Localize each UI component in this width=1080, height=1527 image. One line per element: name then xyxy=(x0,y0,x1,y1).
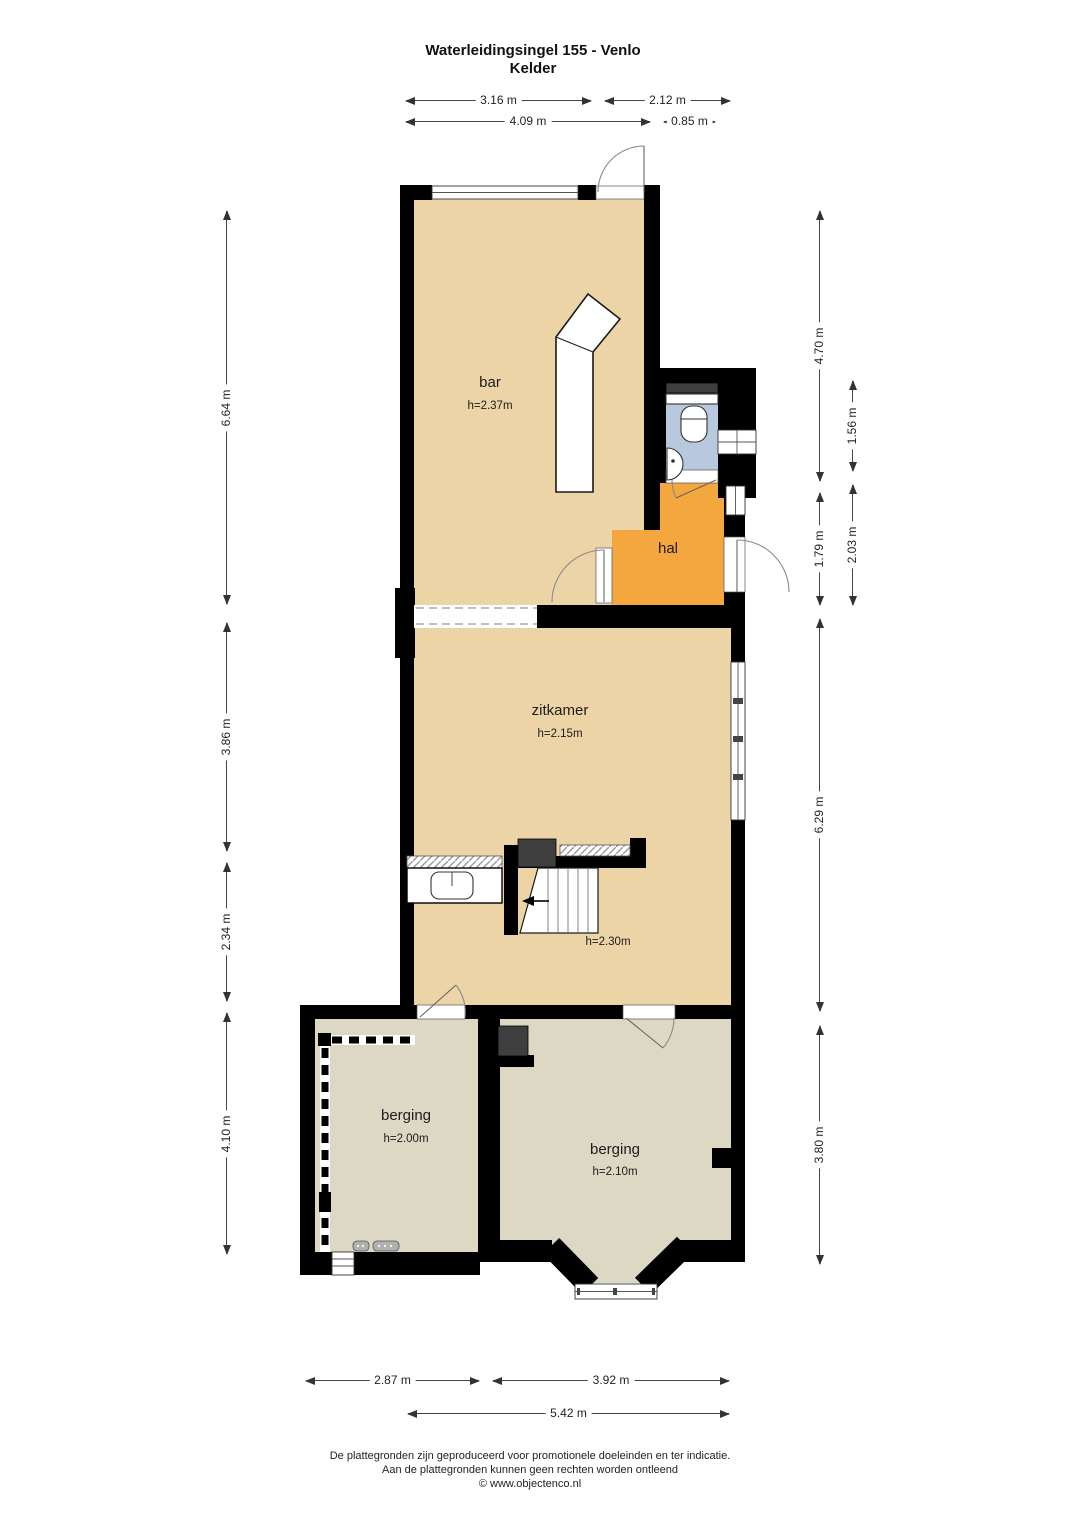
dim-label: 6.29 m xyxy=(812,792,826,839)
dim-right-2: 1.56 m xyxy=(846,380,859,472)
dim-right-5: 6.29 m xyxy=(813,618,826,1012)
dim-left-2: 3.86 m xyxy=(220,622,233,852)
dim-label: 1.79 m xyxy=(812,526,826,573)
toilet-shelf xyxy=(666,394,718,404)
dim-bottom-1: 2.87 m xyxy=(305,1374,480,1387)
room-label-berging-left: berging xyxy=(381,1107,431,1124)
dim-top-4: 0.85 m xyxy=(663,115,716,128)
meter-icons xyxy=(353,1241,399,1251)
footer-disclaimer-2: Aan de plattegronden kunnen geen rechten… xyxy=(382,1464,678,1476)
bay-window-icon xyxy=(575,1284,657,1299)
dim-label: 2.12 m xyxy=(644,93,691,107)
dim-label: 3.16 m xyxy=(475,93,522,107)
hal-window-icon xyxy=(726,486,745,515)
zitkamer-window-icon xyxy=(731,662,745,820)
dim-right-3: 1.79 m xyxy=(813,492,826,606)
footer-disclaimer-1: De plattegronden zijn geproduceerd voor … xyxy=(330,1450,731,1462)
dim-label: 4.70 m xyxy=(812,323,826,370)
room-label-hal: hal xyxy=(658,540,678,557)
bar-zitkamer-opening xyxy=(414,605,537,628)
dim-label: 3.86 m xyxy=(219,714,233,761)
dim-top-3: 4.09 m xyxy=(405,115,651,128)
room-height-bar: h=2.37m xyxy=(467,400,512,412)
hal-exit-door-icon xyxy=(724,537,789,592)
dim-left-4: 4.10 m xyxy=(220,1012,233,1255)
dim-label: 1.56 m xyxy=(845,403,859,450)
room-label-bar: bar xyxy=(479,374,501,391)
room-height-berging-left: h=2.00m xyxy=(383,1133,428,1145)
dim-label: 2.03 m xyxy=(845,522,859,569)
dim-label: 2.34 m xyxy=(219,909,233,956)
dim-left-1: 6.64 m xyxy=(220,210,233,605)
dim-label: 3.80 m xyxy=(812,1122,826,1169)
dim-label: 4.09 m xyxy=(505,114,552,128)
room-height-stairs: h=2.30m xyxy=(585,936,630,948)
footer-copyright: © www.objectenco.nl xyxy=(479,1478,581,1490)
dim-top-2: 2.12 m xyxy=(604,94,731,107)
floorplan-page: Waterleidingsingel 155 - Venlo Kelder ba… xyxy=(0,0,1080,1527)
room-floors xyxy=(315,199,731,1283)
dim-label: 4.10 m xyxy=(219,1110,233,1157)
room-label-berging-right: berging xyxy=(590,1141,640,1158)
dim-label: 2.87 m xyxy=(369,1373,416,1387)
dim-label: 3.92 m xyxy=(588,1373,635,1387)
berging-left-window-icon xyxy=(332,1252,354,1275)
dim-top-1: 3.16 m xyxy=(405,94,592,107)
sink-icon xyxy=(431,872,473,899)
room-height-zitkamer: h=2.15m xyxy=(537,728,582,740)
toilet-icon xyxy=(681,406,707,442)
dim-bottom-2: 3.92 m xyxy=(492,1374,730,1387)
dim-right-1: 4.70 m xyxy=(813,210,826,482)
dim-label: 5.42 m xyxy=(545,1406,592,1420)
floorplan-drawing xyxy=(0,0,1080,1527)
dim-left-3: 2.34 m xyxy=(220,862,233,1002)
bar-top-window-icon xyxy=(432,186,578,199)
bar-entrance-door-icon xyxy=(596,146,644,199)
dim-bottom-3: 5.42 m xyxy=(407,1407,730,1420)
page-title: Waterleidingsingel 155 - Venlo xyxy=(425,42,640,59)
toilet-window-icon xyxy=(718,430,756,454)
toilet-shelf-block xyxy=(666,383,718,393)
dim-label: 6.64 m xyxy=(219,384,233,431)
room-height-berging-right: h=2.10m xyxy=(592,1166,637,1178)
room-label-zitkamer: zitkamer xyxy=(532,702,589,719)
page-subtitle: Kelder xyxy=(510,60,557,77)
dim-label: 0.85 m xyxy=(666,114,713,128)
hatched-niche xyxy=(407,856,502,868)
chimney-block xyxy=(498,1026,528,1056)
dim-right-4: 2.03 m xyxy=(846,484,859,606)
dim-right-6: 3.80 m xyxy=(813,1025,826,1265)
zitkamer-floor xyxy=(414,628,731,1005)
